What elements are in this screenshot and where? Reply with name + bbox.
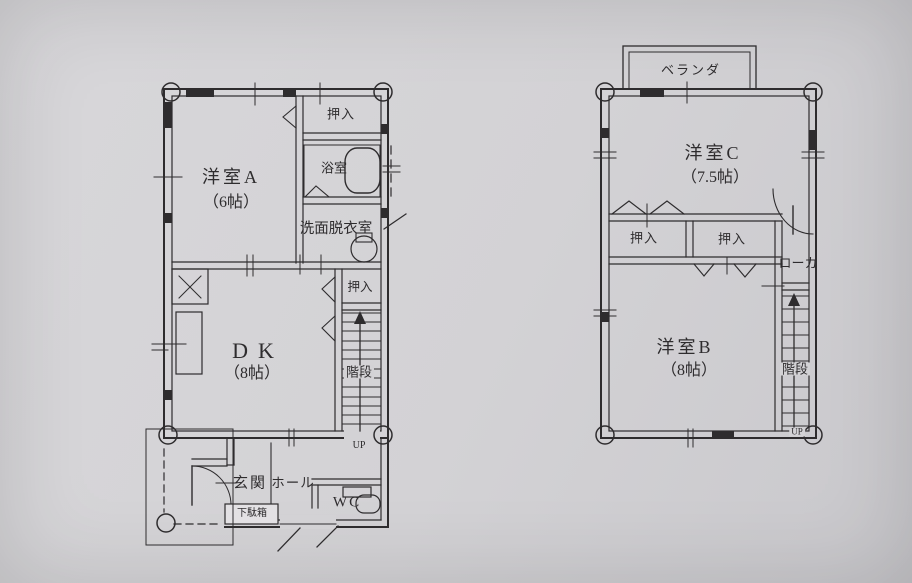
- floor1-corner-posts: [157, 83, 392, 532]
- room-a-size: （6帖）: [203, 195, 259, 211]
- floorplan-drawing: [0, 0, 912, 583]
- hallway-label: ローカ: [778, 257, 817, 270]
- wc-label: WC: [333, 496, 361, 511]
- washroom-label: 洗面脱衣室: [300, 222, 373, 237]
- floor2-plan: [594, 46, 824, 447]
- dk-size: （8帖）: [224, 366, 280, 382]
- dk-label: DK: [222, 340, 284, 362]
- washbasin-icon: [351, 233, 377, 262]
- floor1-window-ticks: [152, 83, 406, 446]
- stairs1-up-label: UP: [353, 441, 366, 451]
- room-c-label: 洋室C: [684, 144, 741, 162]
- shoe-cabinet-label: 下駄箱: [237, 509, 267, 519]
- entry-step-mark: [278, 528, 300, 551]
- hall-label: ホール: [271, 476, 315, 490]
- bathroom-label: 浴室: [321, 162, 347, 175]
- room-a-label: 洋室A: [202, 168, 260, 186]
- closet-left-label: 押入: [630, 232, 658, 245]
- room-b-label: 洋室B: [656, 338, 713, 356]
- entry-step-mark: [317, 526, 338, 547]
- bathtub-icon: [345, 148, 380, 193]
- floor2-stairs: [782, 293, 809, 428]
- kitchen-counter: [176, 312, 202, 374]
- stairs2-label: 階段: [780, 363, 810, 376]
- room-c-door-arc: [773, 189, 813, 234]
- room-b-size: （8帖）: [661, 363, 717, 379]
- floorplan-image: 洋室A （6帖） 押入 浴室 洗面脱衣室 DK （8帖） 押入 階段 UP 玄関…: [0, 0, 912, 583]
- room-c-size: （7.5帖）: [681, 170, 749, 186]
- stairs1-label: 階段: [344, 366, 374, 379]
- closet-dk-label: 押入: [347, 281, 372, 294]
- closet-right-label: 押入: [718, 233, 746, 246]
- kitchen-sink-icon: [172, 269, 208, 374]
- veranda-label: ベランダ: [661, 64, 721, 77]
- floor2-interior-walls: [609, 214, 809, 431]
- stairs2-up-label: UP: [789, 428, 805, 437]
- entrance-door-arc: [192, 466, 231, 505]
- genkan-label: 玄関: [233, 477, 267, 492]
- closet-top-label: 押入: [327, 108, 355, 121]
